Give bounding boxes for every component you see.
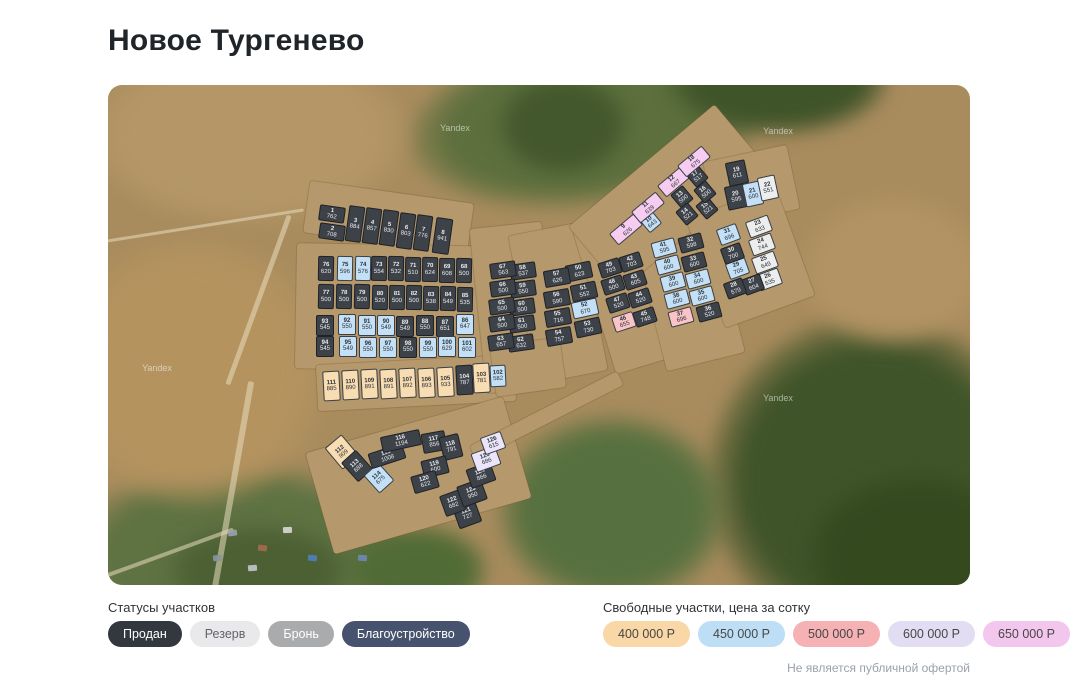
plot-86[interactable]: 86647 <box>456 314 474 335</box>
plot-area: 600 <box>668 281 679 290</box>
plot-number: 79 <box>359 290 366 296</box>
plot-area: 500 <box>517 323 528 331</box>
plot-area: 933 <box>440 382 450 389</box>
plot-number: 72 <box>393 262 400 268</box>
plot-area: 884 <box>349 223 360 231</box>
plot-105[interactable]: 105933 <box>436 367 455 398</box>
plot-area: 595 <box>731 196 742 204</box>
plot-area: 510 <box>408 269 418 275</box>
plot-area: 857 <box>366 225 377 233</box>
plot-area: 550 <box>423 347 433 353</box>
plot-area: 550 <box>420 325 430 331</box>
plot-number: 74 <box>360 262 367 268</box>
plot-69[interactable]: 69608 <box>439 257 455 282</box>
plot-area: 500 <box>339 296 349 302</box>
plot-area: 708 <box>326 231 337 239</box>
plot-area: 535 <box>460 299 470 305</box>
plot-area: 703 <box>605 266 616 275</box>
village-house <box>358 555 367 562</box>
village-house <box>258 545 268 552</box>
plot-area: 550 <box>342 324 352 330</box>
plot-area: 590 <box>552 297 563 305</box>
plot-76[interactable]: 76620 <box>318 255 334 280</box>
plot-area: 545 <box>320 325 330 331</box>
plot-107[interactable]: 107892 <box>398 368 417 399</box>
plot-number: 77 <box>323 290 330 296</box>
plot-91[interactable]: 91550 <box>358 315 376 336</box>
plot-number: 83 <box>428 292 435 298</box>
plot-99[interactable]: 99550 <box>419 337 437 358</box>
plot-79[interactable]: 79500 <box>354 283 370 308</box>
plot-area: 776 <box>417 232 428 240</box>
price-legend: 400 000 Р 450 000 Р 500 000 Р 600 000 Р … <box>603 621 1070 647</box>
plot-area: 620 <box>321 268 331 274</box>
plot-area: 600 <box>672 298 683 307</box>
plot-area: 830 <box>383 227 394 235</box>
plot-95[interactable]: 95549 <box>339 336 357 357</box>
plot-number: 78 <box>341 290 348 296</box>
plot-area: 657 <box>496 341 507 349</box>
plot-area: 892 <box>402 383 412 390</box>
plot-area: 500 <box>392 297 402 303</box>
plot-area: 600 <box>748 193 759 201</box>
plot-101[interactable]: 101602 <box>458 337 476 358</box>
plot-number: 84 <box>445 292 452 298</box>
plot-area: 891 <box>383 384 393 391</box>
plot-92[interactable]: 92550 <box>338 314 356 335</box>
plot-area: 549 <box>343 346 353 352</box>
plot-68[interactable]: 68500 <box>456 257 472 282</box>
plot-area: 623 <box>574 270 585 278</box>
plot-area: 748 <box>640 315 651 324</box>
satellite-terrain-patch <box>108 235 328 505</box>
plot-area: 1194 <box>395 440 409 449</box>
plot-area: 757 <box>554 335 565 343</box>
plot-area: 762 <box>326 213 337 221</box>
village-house <box>228 529 238 536</box>
plot-area: 670 <box>580 307 591 315</box>
plot-area: 941 <box>436 235 447 243</box>
plot-74[interactable]: 74576 <box>355 255 371 280</box>
plot-area: 624 <box>425 269 435 275</box>
status-badge-improvement[interactable]: Благоустройство <box>342 621 470 647</box>
plot-2[interactable]: 2708 <box>318 222 346 241</box>
plot-96[interactable]: 96550 <box>359 337 377 358</box>
plot-number: 70 <box>427 263 434 269</box>
plot-110[interactable]: 110890 <box>341 370 360 401</box>
plot-84[interactable]: 84549 <box>440 285 456 310</box>
plot-78[interactable]: 78500 <box>336 283 352 308</box>
plot-area: 856 <box>429 441 440 449</box>
plot-area: 500 <box>497 305 508 313</box>
plot-area: 538 <box>426 298 436 304</box>
yandex-watermark: Yandex <box>440 123 470 133</box>
status-badge-hold[interactable]: Бронь <box>268 621 334 647</box>
plot-area: 622 <box>420 481 431 490</box>
status-legend-title: Статусы участков <box>108 600 215 615</box>
price-badge-500[interactable]: 500 000 Р <box>793 621 880 647</box>
plot-1[interactable]: 1762 <box>318 204 346 223</box>
plot-area: 600 <box>697 295 708 304</box>
plot-97[interactable]: 97550 <box>379 337 397 358</box>
plot-81[interactable]: 81500 <box>389 284 405 309</box>
plot-area: 500 <box>321 296 331 302</box>
plot-number: 73 <box>376 262 383 268</box>
plot-103[interactable]: 103781 <box>472 363 491 394</box>
plot-area: 787 <box>459 380 469 387</box>
price-badge-400[interactable]: 400 000 Р <box>603 621 690 647</box>
plot-area: 520 <box>375 297 385 303</box>
plot-area: 885 <box>326 386 336 393</box>
plot-area: 550 <box>403 347 413 353</box>
plot-area: 550 <box>363 347 373 353</box>
plot-71[interactable]: 71510 <box>405 256 421 281</box>
masterplan-map[interactable]: 1762270838844857583068037776894196261064… <box>108 85 970 585</box>
plot-number: 68 <box>461 264 468 270</box>
plot-82[interactable]: 82500 <box>406 284 422 309</box>
plot-number: 80 <box>377 291 384 297</box>
plot-106[interactable]: 106893 <box>417 368 436 399</box>
village-house <box>248 565 257 572</box>
page-title: Новое Тургенево <box>108 24 365 58</box>
plot-area: 730 <box>583 326 594 334</box>
plot-70[interactable]: 70624 <box>422 256 438 281</box>
plot-area: 576 <box>358 268 368 274</box>
plot-number: 85 <box>462 293 469 299</box>
plot-94[interactable]: 94545 <box>316 336 334 357</box>
plot-area: 582 <box>493 376 503 383</box>
plot-90[interactable]: 90549 <box>377 315 395 336</box>
price-badge-450[interactable]: 450 000 Р <box>698 621 785 647</box>
plot-72[interactable]: 72532 <box>388 255 404 280</box>
plot-area: 500 <box>498 287 509 295</box>
village-house <box>213 555 222 562</box>
plot-area: 803 <box>400 230 411 238</box>
plot-area: 608 <box>442 270 452 276</box>
plot-area: 554 <box>374 268 384 274</box>
plot-area: 791 <box>446 446 457 455</box>
plot-number: 76 <box>323 262 330 268</box>
plot-area: 500 <box>517 306 528 314</box>
plot-area: 629 <box>442 346 452 352</box>
plot-area: 537 <box>518 270 529 278</box>
plot-area: 500 <box>409 297 419 303</box>
status-badge-sold[interactable]: Продан <box>108 621 182 647</box>
plot-number: 71 <box>410 263 417 269</box>
village-house <box>308 555 317 562</box>
plot-area: 605 <box>630 278 641 287</box>
plot-area: 696 <box>676 316 687 325</box>
plot-73[interactable]: 73554 <box>371 255 387 280</box>
status-badge-reserve[interactable]: Резерв <box>190 621 261 647</box>
plot-area: 655 <box>619 320 630 329</box>
plot-area: 520 <box>613 301 624 310</box>
plot-area: 552 <box>579 290 590 298</box>
plot-number: 81 <box>394 291 401 297</box>
price-badge-650[interactable]: 650 000 Р <box>983 621 1070 647</box>
yandex-watermark: Yandex <box>763 126 793 136</box>
plot-area: 549 <box>400 326 410 332</box>
plot-109[interactable]: 109891 <box>360 369 379 400</box>
plot-area: 500 <box>608 283 619 292</box>
plot-88[interactable]: 88550 <box>416 315 434 336</box>
plot-100[interactable]: 100629 <box>438 336 456 357</box>
plot-83[interactable]: 83538 <box>423 285 439 310</box>
plot-area: 602 <box>462 347 472 353</box>
plot-area: 545 <box>320 346 330 352</box>
plot-area: 781 <box>476 378 486 385</box>
plot-area: 551 <box>763 187 774 195</box>
status-legend: Продан Резерв Бронь Благоустройство <box>108 621 470 647</box>
plot-number: 75 <box>342 262 349 268</box>
page: Новое Тургенево 176227083884485758306803… <box>0 0 1080 700</box>
plot-87[interactable]: 87651 <box>436 316 454 337</box>
price-legend-title: Свободные участки, цена за сотку <box>603 600 810 615</box>
plot-area: 651 <box>440 326 450 332</box>
yandex-watermark: Yandex <box>763 393 793 403</box>
plot-98[interactable]: 98550 <box>399 337 417 358</box>
plot-area: 891 <box>364 384 374 391</box>
plot-77[interactable]: 77500 <box>318 283 334 308</box>
plot-93[interactable]: 93545 <box>316 315 334 336</box>
plot-102[interactable]: 102582 <box>489 365 506 388</box>
plot-area: 550 <box>362 325 372 331</box>
plot-number: 69 <box>444 264 451 270</box>
plot-area: 500 <box>459 270 469 276</box>
plot-area: 647 <box>460 324 470 330</box>
plot-area: 890 <box>345 385 355 392</box>
plot-89[interactable]: 89549 <box>396 316 414 337</box>
plot-area: 595 <box>659 247 670 256</box>
plot-area: 596 <box>340 268 350 274</box>
plot-area: 626 <box>552 276 563 284</box>
plot-area: 598 <box>686 242 697 251</box>
plot-area: 600 <box>663 264 674 273</box>
plot-area: 500 <box>357 296 367 302</box>
plot-area: 600 <box>689 261 700 270</box>
plot-number: 82 <box>411 291 418 297</box>
village-house <box>283 527 292 533</box>
plot-area: 632 <box>516 342 527 350</box>
plot-area: 520 <box>635 296 646 305</box>
yandex-watermark: Yandex <box>142 363 172 373</box>
plot-area: 549 <box>443 298 453 304</box>
plot-area: 549 <box>381 325 391 331</box>
plot-80[interactable]: 80520 <box>372 284 388 309</box>
plot-area: 532 <box>391 268 401 274</box>
satellite-terrain-patch <box>498 415 728 585</box>
plot-108[interactable]: 108891 <box>379 369 398 400</box>
plot-area: 611 <box>732 172 743 180</box>
plot-area: 500 <box>497 322 508 330</box>
plot-75[interactable]: 75596 <box>337 255 353 280</box>
plot-area: 716 <box>553 316 564 324</box>
plot-area: 520 <box>704 311 715 320</box>
price-badge-600[interactable]: 600 000 Р <box>888 621 975 647</box>
disclaimer-text: Не является публичной офертой <box>787 661 970 675</box>
plot-111[interactable]: 111885 <box>322 371 341 402</box>
plot-area: 550 <box>518 288 529 296</box>
plot-area: 600 <box>693 278 704 287</box>
plot-85[interactable]: 85535 <box>457 286 473 311</box>
plot-area: 550 <box>383 347 393 353</box>
plot-area: 563 <box>498 269 509 277</box>
plot-104[interactable]: 104787 <box>455 365 474 396</box>
plot-area: 703 <box>626 260 637 269</box>
plot-area: 893 <box>421 383 431 390</box>
